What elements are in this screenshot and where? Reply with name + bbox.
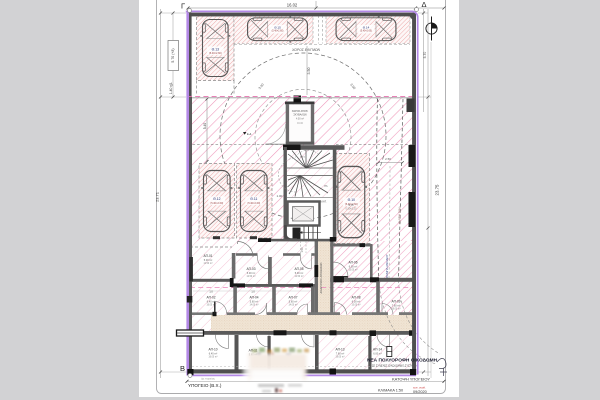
svg-text:12.50 m³: 12.50 m³ (294, 275, 303, 278)
svg-text:ΑΠ-07: ΑΠ-07 (288, 296, 297, 300)
svg-text:0.90×2.20: 0.90×2.20 (346, 207, 357, 210)
svg-text:5.60 m²: 5.60 m² (289, 300, 298, 303)
svg-text:ΑΠ-01: ΑΠ-01 (203, 254, 212, 258)
svg-text:(5.40×2.60): (5.40×2.60) (247, 202, 260, 205)
svg-text:5.00 m²: 5.00 m² (204, 259, 213, 262)
svg-text:Θ.11: Θ.11 (250, 197, 257, 201)
svg-text:ΑΠ-13: ΑΠ-13 (335, 348, 344, 352)
svg-text:(5.40×2.60): (5.40×2.60) (210, 202, 223, 205)
svg-text:(5.40×2.60): (5.40×2.60) (272, 30, 284, 33)
svg-text:7.60 m²: 7.60 m² (392, 304, 401, 307)
svg-text:ΠΛ: ΠΛ (324, 186, 328, 188)
svg-text:6.00 m²: 6.00 m² (349, 265, 358, 268)
svg-text:16.00 m³: 16.00 m³ (208, 356, 217, 359)
svg-text:3.50: 3.50 (307, 68, 311, 75)
svg-text:12.50 m³: 12.50 m³ (246, 275, 255, 278)
svg-text:ΑΠ-03: ΑΠ-03 (246, 267, 255, 271)
svg-text:4.00 m²: 4.00 m² (296, 118, 304, 121)
svg-text:6.40 m²: 6.40 m² (209, 352, 218, 355)
svg-text:23.75: 23.75 (435, 184, 440, 196)
svg-text:5.00 m²: 5.00 m² (247, 272, 256, 275)
svg-text:ΑΠ-09: ΑΠ-09 (391, 300, 400, 304)
svg-text:ΑΠ-04: ΑΠ-04 (249, 296, 258, 300)
svg-text:ΡΑΜΠΑ ΑΝΟΔΟΥ: ΡΑΜΠΑ ΑΝΟΔΟΥ (385, 254, 389, 278)
svg-text:4 5 6: 4 5 6 (300, 157, 306, 159)
svg-text:12.50 m³: 12.50 m³ (203, 262, 212, 265)
svg-text:19.00 m³: 19.00 m³ (335, 356, 344, 359)
svg-text:ΚΑΤΟΨΗ ΥΠΟΓΕΙΟΥ: ΚΑΤΟΨΗ ΥΠΟΓΕΙΟΥ (392, 376, 430, 381)
svg-text:(ΚΛΙΣΗ 15%): (ΚΛΙΣΗ 15%) (398, 206, 402, 223)
svg-text:(5.40×2.60): (5.40×2.60) (360, 30, 372, 33)
svg-text:ΑΠ-14: ΑΠ-14 (373, 348, 382, 352)
svg-text:ΑΠ-08: ΑΠ-08 (351, 296, 360, 300)
svg-text:±0.00: ±0.00 (297, 122, 304, 125)
svg-text:5.00 m²: 5.00 m² (295, 272, 304, 275)
svg-text:όρ.πορείας: όρ.πορείας (201, 376, 215, 380)
svg-text:5.70: 5.70 (423, 52, 427, 59)
svg-text:Θ.13: Θ.13 (212, 47, 219, 51)
svg-text:Θ.10: Θ.10 (348, 198, 355, 202)
svg-text:09/2020: 09/2020 (413, 390, 427, 394)
svg-text:ΥΠΟΓΕΙΟ (Β.Χ.): ΥΠΟΓΕΙΟ (Β.Χ.) (188, 383, 222, 388)
svg-text:6.00 m²: 6.00 m² (373, 352, 382, 355)
svg-text:Δ: Δ (422, 0, 427, 9)
svg-text:ΑΠ-05: ΑΠ-05 (294, 267, 303, 271)
svg-text:5.40: 5.40 (203, 123, 207, 130)
svg-text:B: B (180, 364, 185, 373)
svg-text:(5.40×2.60): (5.40×2.60) (209, 52, 222, 55)
svg-text:Θ.12: Θ.12 (213, 197, 220, 201)
svg-text:23.71: 23.71 (155, 191, 160, 202)
svg-text:ΑΠ-02: ΑΠ-02 (206, 296, 215, 300)
svg-text:5.70 (+δ): 5.70 (+δ) (171, 48, 175, 62)
svg-text:1.00: 1.00 (277, 194, 283, 198)
svg-text:ιουν. αναθ.: ιουν. αναθ. (413, 385, 426, 389)
svg-text:14.00 m³: 14.00 m³ (249, 304, 258, 307)
svg-text:ΔΙΑΔΡΟΜΟΣ ΑΠΟΘΗΚΩΝ: ΔΙΑΔΡΟΜΟΣ ΑΠΟΘΗΚΩΝ (319, 262, 323, 293)
svg-text:ΚΛΙΜΑΚΑ 1:50: ΚΛΙΜΑΚΑ 1:50 (378, 389, 403, 393)
svg-text:14.00 m³: 14.00 m³ (288, 304, 297, 307)
svg-text:6.00 m²: 6.00 m² (352, 300, 361, 303)
svg-text:ΝΕΑ ΠΟΛΥΟΡΟΦΗ ΟΙΚΟΔΟΜΗ: ΝΕΑ ΠΟΛΥΟΡΟΦΗ ΟΙΚΟΔΟΜΗ (367, 358, 438, 364)
svg-text:Γ: Γ (181, 2, 185, 11)
svg-text:ΣΚΥΒΑΛΩΝ: ΣΚΥΒΑΛΩΝ (294, 114, 307, 117)
svg-text:19.00 m³: 19.00 m³ (391, 308, 400, 311)
svg-text:15.00 m³: 15.00 m³ (351, 304, 360, 307)
svg-text:7.60 m²: 7.60 m² (336, 352, 345, 355)
svg-text:2.50: 2.50 (385, 157, 391, 161)
svg-text:ΣΕ ΣΥΝΕΧΕΣ ΟΙΚΟΔΟΜΙΚΟ ΣΥΣΤΗΜΑ: ΣΕ ΣΥΝΕΧΕΣ ΟΙΚΟΔΟΜΙΚΟ ΣΥΣΤΗΜΑ (372, 364, 417, 367)
svg-text:Θ.14: Θ.14 (363, 25, 370, 29)
svg-text:ΧΩΡΟΣ ΕΛΙΓΜΩΝ: ΧΩΡΟΣ ΕΛΙΓΜΩΝ (291, 48, 321, 52)
svg-text:ΑΠ-06: ΑΠ-06 (348, 261, 357, 265)
svg-text:1.40 ηβ.: 1.40 ηβ. (169, 82, 173, 94)
svg-text:Ε.Δ.: Ε.Δ. (247, 132, 252, 136)
svg-text:15.00 m³: 15.00 m³ (348, 269, 357, 272)
svg-text:ΑΠ-10: ΑΠ-10 (208, 348, 217, 352)
svg-text:5.60 m²: 5.60 m² (250, 300, 259, 303)
svg-text:Θ.15: Θ.15 (274, 25, 281, 29)
svg-text:16.02: 16.02 (287, 2, 298, 7)
